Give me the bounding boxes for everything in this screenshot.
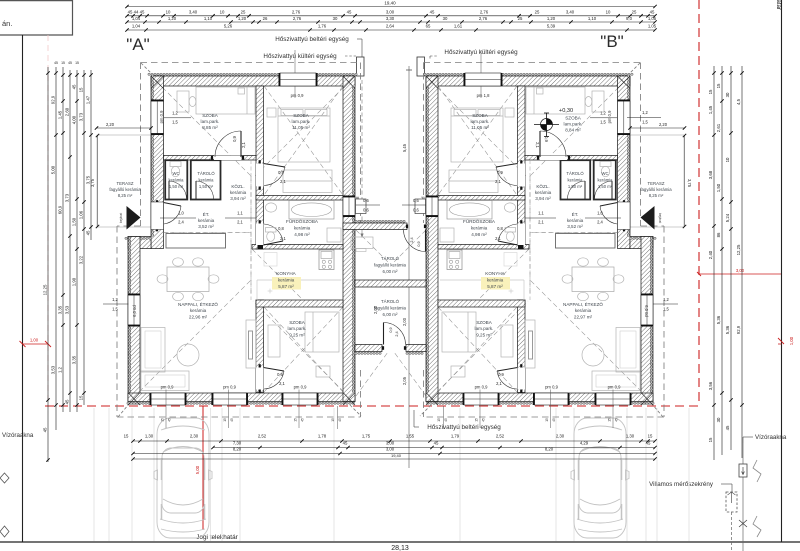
svg-text:lam.park.: lam.park. — [471, 119, 490, 124]
svg-text:2,1: 2,1 — [237, 220, 243, 225]
svg-text:KÖZL.: KÖZL. — [536, 183, 549, 189]
svg-text:65: 65 — [426, 24, 431, 29]
svg-text:fagyálló kerámia: fagyálló kerámia — [374, 263, 407, 268]
svg-text:5,87 m²: 5,87 m² — [487, 284, 503, 289]
svg-text:45: 45 — [615, 418, 619, 422]
svg-text:45: 45 — [168, 418, 172, 422]
svg-text:2,64: 2,64 — [386, 24, 395, 29]
svg-text:2,52: 2,52 — [258, 434, 267, 439]
svg-text:1,50: 1,50 — [716, 183, 721, 192]
svg-text:2,1: 2,1 — [496, 381, 502, 386]
svg-text:92,9: 92,9 — [51, 95, 56, 104]
svg-text:86: 86 — [716, 232, 721, 237]
svg-text:1,78: 1,78 — [318, 434, 327, 439]
svg-text:2,1: 2,1 — [280, 179, 286, 184]
svg-text:2,76: 2,76 — [292, 10, 301, 15]
svg-text:3,35: 3,35 — [72, 355, 77, 364]
svg-text:3,00: 3,00 — [736, 268, 745, 273]
svg-text:15: 15 — [437, 418, 441, 422]
svg-text:45: 45 — [54, 61, 58, 65]
svg-text:1,47: 1,47 — [86, 95, 91, 104]
svg-text:pm 0,9: pm 0,9 — [223, 385, 236, 390]
svg-text:lam.park.: lam.park. — [201, 119, 220, 124]
svg-text:45: 45 — [444, 418, 448, 422]
svg-text:19,40: 19,40 — [391, 453, 402, 458]
svg-text:kerámia: kerámia — [471, 226, 488, 231]
svg-text:kerámia: kerámia — [198, 218, 215, 223]
svg-text:pm 0,9: pm 0,9 — [608, 385, 621, 390]
svg-text:ÉT.: ÉT. — [203, 211, 210, 217]
svg-text:0,6: 0,6 — [413, 198, 419, 203]
svg-text:45: 45 — [65, 399, 70, 404]
svg-text:0,6: 0,6 — [363, 208, 369, 213]
svg-text:pm 0,9: pm 0,9 — [545, 385, 558, 390]
svg-text:1,2: 1,2 — [663, 297, 669, 302]
svg-text:0,8: 0,8 — [278, 226, 284, 231]
svg-text:6,00 m²: 6,00 m² — [383, 312, 398, 317]
svg-text:1,61: 1,61 — [454, 24, 463, 29]
svg-text:45: 45 — [230, 418, 234, 422]
svg-text:8,84 m²: 8,84 m² — [565, 128, 581, 133]
svg-text:1,5: 1,5 — [663, 307, 669, 312]
svg-text:2,4: 2,4 — [410, 237, 414, 242]
svg-text:kerámia: kerámia — [278, 278, 295, 283]
svg-text:1,0: 1,0 — [597, 211, 603, 216]
svg-text:30: 30 — [333, 16, 338, 21]
svg-text:5,45: 5,45 — [402, 143, 407, 152]
svg-text:kerámia: kerámia — [598, 178, 614, 183]
svg-text:SZOBA: SZOBA — [565, 116, 582, 121]
svg-text:fagyálló kerámia: fagyálló kerámia — [640, 187, 672, 192]
svg-text:1,20: 1,20 — [547, 16, 556, 21]
svg-text:10: 10 — [606, 10, 611, 15]
svg-text:3,53: 3,53 — [51, 365, 56, 374]
svg-text:TÁROLÓ: TÁROLÓ — [566, 171, 584, 176]
svg-text:fagyálló kerámia: fagyálló kerámia — [374, 306, 407, 311]
svg-text:kerámia: kerámia — [487, 278, 504, 283]
svg-text:2,52: 2,52 — [496, 434, 505, 439]
svg-text:1,06: 1,06 — [79, 210, 84, 219]
svg-text:3,30: 3,30 — [386, 16, 395, 21]
svg-text:kerámia: kerámia — [230, 190, 247, 195]
svg-text:9,0: 9,0 — [626, 16, 633, 21]
svg-text:pm 0,9: pm 0,9 — [294, 385, 307, 390]
svg-text:3,73: 3,73 — [79, 112, 84, 121]
svg-text:2,1: 2,1 — [280, 236, 286, 241]
svg-text:25: 25 — [535, 10, 540, 15]
svg-text:5,26: 5,26 — [224, 24, 233, 29]
svg-text:19,40: 19,40 — [384, 1, 396, 6]
svg-text:án.: án. — [2, 19, 12, 28]
svg-text:5,87 m²: 5,87 m² — [278, 284, 294, 289]
svg-text:45: 45 — [347, 10, 352, 15]
svg-text:kerámia: kerámia — [190, 308, 207, 313]
svg-text:25: 25 — [241, 10, 246, 15]
svg-text:Vízóraakna: Vízóraakna — [2, 432, 34, 439]
svg-text:0,9: 0,9 — [278, 170, 284, 175]
svg-text:1,05: 1,05 — [648, 16, 657, 21]
svg-text:3,73: 3,73 — [65, 193, 70, 202]
svg-text:28,13: 28,13 — [391, 545, 409, 551]
svg-text:KÖZL.: KÖZL. — [231, 183, 244, 189]
svg-text:bejárat: bejárat — [658, 213, 662, 223]
svg-text:kerámia: kerámia — [169, 178, 185, 183]
svg-text:Jogi telekhatár: Jogi telekhatár — [196, 534, 238, 541]
svg-text:1,5: 1,5 — [600, 120, 606, 125]
svg-text:1,2: 1,2 — [600, 111, 606, 116]
svg-text:1,1: 1,1 — [237, 211, 243, 216]
svg-text:"B": "B" — [600, 32, 623, 51]
svg-text:1,79: 1,79 — [451, 434, 460, 439]
svg-text:1,5: 1,5 — [172, 120, 178, 125]
svg-text:92,9: 92,9 — [736, 325, 741, 334]
svg-text:2,4: 2,4 — [395, 331, 399, 336]
svg-text:1,45: 1,45 — [708, 105, 713, 114]
svg-text:6,00 m²: 6,00 m² — [383, 269, 398, 274]
svg-text:30: 30 — [443, 16, 448, 21]
svg-text:3,94 m²: 3,94 m² — [535, 196, 551, 201]
svg-text:0,6: 0,6 — [363, 198, 369, 203]
svg-text:22,96 m²: 22,96 m² — [189, 315, 208, 320]
svg-text:NAPPALI, ÉTKEZÕ: NAPPALI, ÉTKEZÕ — [178, 301, 218, 307]
svg-text:45: 45 — [552, 418, 556, 422]
svg-text:lam.park.: lam.park. — [564, 122, 583, 127]
svg-text:WC: WC — [602, 171, 609, 176]
svg-text:1,00: 1,00 — [789, 336, 794, 345]
svg-text:45: 45 — [86, 230, 91, 235]
svg-text:lam.park.: lam.park. — [288, 326, 307, 331]
svg-text:kerámia: kerámia — [575, 308, 592, 313]
svg-text:pm 1,8: pm 1,8 — [477, 93, 490, 98]
svg-text:25: 25 — [632, 10, 637, 15]
svg-text:2,00: 2,00 — [402, 317, 407, 326]
svg-text:1,76: 1,76 — [318, 24, 327, 29]
svg-text:FÜRDÕSZOBA: FÜRDÕSZOBA — [463, 218, 496, 224]
svg-text:1,50 m²: 1,50 m² — [568, 184, 583, 189]
svg-text:TÁROLÓ: TÁROLÓ — [381, 256, 400, 261]
svg-text:3,22: 3,22 — [79, 255, 84, 264]
svg-text:0,9: 0,9 — [417, 241, 421, 246]
svg-text:kerámia: kerámia — [567, 218, 584, 223]
svg-text:15: 15 — [475, 418, 479, 422]
svg-text:bejárat: bejárat — [119, 213, 123, 223]
svg-text:11,05 m²: 11,05 m² — [292, 125, 310, 130]
svg-text:0,9: 0,9 — [277, 372, 283, 377]
svg-text:15: 15 — [331, 418, 335, 422]
svg-text:kerámia: kerámia — [535, 190, 552, 195]
svg-text:3,40: 3,40 — [566, 10, 575, 15]
svg-text:8,20: 8,20 — [545, 447, 554, 452]
svg-text:22,97 m²: 22,97 m² — [574, 315, 593, 320]
svg-text:8,25 m²: 8,25 m² — [649, 193, 664, 198]
svg-text:2,05: 2,05 — [402, 376, 407, 385]
svg-text:WC: WC — [173, 171, 180, 176]
svg-text:15: 15 — [124, 434, 129, 439]
svg-text:45: 45 — [343, 441, 348, 446]
svg-text:15: 15 — [708, 89, 713, 94]
svg-text:7,30: 7,30 — [233, 441, 242, 446]
svg-text:2,1: 2,1 — [495, 236, 501, 241]
svg-text:NAPPALI, ÉTKEZÕ: NAPPALI, ÉTKEZÕ — [563, 301, 603, 307]
svg-text:"A": "A" — [126, 35, 149, 54]
svg-text:8,20: 8,20 — [233, 447, 242, 452]
svg-text:1,00: 1,00 — [30, 338, 39, 343]
svg-text:pm 0,9: pm 0,9 — [291, 93, 304, 98]
svg-text:Hőszivattyú beltéri egység: Hőszivattyú beltéri egység — [427, 424, 501, 431]
svg-text:5,24: 5,24 — [725, 213, 730, 222]
svg-text:1,0: 1,0 — [178, 211, 184, 216]
svg-text:0,9: 0,9 — [497, 170, 503, 175]
svg-text:SZOBA: SZOBA — [202, 113, 219, 118]
svg-text:11,05 m²: 11,05 m² — [471, 125, 489, 130]
svg-text:1,10: 1,10 — [204, 16, 213, 21]
svg-text:lam.park.: lam.park. — [475, 326, 494, 331]
svg-text:45: 45 — [68, 61, 72, 65]
svg-text:1,04: 1,04 — [132, 16, 141, 21]
svg-text:1,50 m²: 1,50 m² — [598, 184, 613, 189]
svg-text:15: 15 — [716, 83, 721, 88]
svg-text:pm 0,9: pm 0,9 — [475, 385, 488, 390]
svg-text:SZOBA: SZOBA — [476, 320, 493, 325]
svg-text:45: 45 — [434, 441, 439, 446]
svg-text:TÁROLÓ: TÁROLÓ — [197, 171, 215, 176]
svg-text:26: 26 — [263, 16, 268, 21]
svg-text:45: 45 — [301, 418, 305, 422]
svg-text:pm 0,9: pm 0,9 — [161, 385, 174, 390]
svg-text:45: 45 — [338, 418, 342, 422]
svg-text:SZOBA: SZOBA — [293, 113, 310, 118]
svg-text:5,36: 5,36 — [716, 315, 721, 324]
svg-text:45: 45 — [72, 84, 77, 89]
svg-text:15: 15 — [294, 418, 298, 422]
svg-text:2,1: 2,1 — [538, 220, 544, 225]
svg-text:15: 15 — [79, 395, 84, 400]
svg-text:2,20: 2,20 — [659, 122, 668, 127]
svg-text:1,30: 1,30 — [145, 434, 154, 439]
svg-text:1,50: 1,50 — [72, 217, 77, 226]
svg-text:2,1: 2,1 — [535, 142, 540, 148]
svg-text:2,1: 2,1 — [241, 141, 246, 147]
svg-text:1,2: 1,2 — [642, 110, 648, 115]
svg-text:Vízóraakna: Vízóraakna — [755, 434, 787, 441]
svg-text:1,5: 1,5 — [642, 120, 648, 125]
svg-text:8,25 m²: 8,25 m² — [118, 193, 133, 198]
svg-text:2,30: 2,30 — [556, 434, 565, 439]
svg-text:Villamos mérőszekrény: Villamos mérőszekrény — [649, 481, 714, 488]
svg-text:2,76: 2,76 — [293, 16, 302, 21]
svg-text:3,56: 3,56 — [708, 381, 713, 390]
svg-text:1,04: 1,04 — [132, 24, 141, 29]
svg-text:45: 45 — [725, 425, 730, 430]
svg-text:2,20: 2,20 — [106, 122, 115, 127]
svg-text:5,00: 5,00 — [195, 465, 200, 474]
svg-text:1,50 m²: 1,50 m² — [169, 184, 184, 189]
svg-text:ÉT.: ÉT. — [572, 211, 579, 217]
svg-text:1,30: 1,30 — [626, 434, 635, 439]
svg-text:25: 25 — [518, 16, 523, 21]
svg-text:2,4: 2,4 — [178, 220, 184, 225]
svg-text:3,94 m²: 3,94 m² — [230, 196, 246, 201]
svg-text:2,76: 2,76 — [480, 10, 489, 15]
svg-text:15: 15 — [545, 418, 549, 422]
svg-text:10: 10 — [220, 10, 225, 15]
svg-text:3,52 m²: 3,52 m² — [567, 224, 583, 229]
svg-text:SZOBA: SZOBA — [472, 113, 489, 118]
svg-text:3,00: 3,00 — [386, 10, 395, 15]
svg-text:1,20: 1,20 — [238, 16, 247, 21]
svg-text:4,98 m²: 4,98 m² — [294, 232, 310, 237]
svg-text:1,2: 1,2 — [172, 111, 178, 116]
svg-text:kerámia: kerámia — [294, 226, 311, 231]
svg-text:kerámia: kerámia — [568, 178, 584, 183]
svg-text:SZOBA: SZOBA — [289, 320, 306, 325]
svg-text:3,52 m²: 3,52 m² — [198, 224, 214, 229]
svg-text:fagyálló kerámia: fagyálló kerámia — [109, 187, 141, 192]
svg-text:4,00: 4,00 — [72, 115, 77, 124]
svg-text:0,9: 0,9 — [498, 372, 504, 377]
svg-text:4,5: 4,5 — [736, 98, 741, 105]
svg-text:3,53: 3,53 — [65, 305, 70, 314]
svg-text:15: 15 — [75, 61, 79, 65]
svg-text:2,40: 2,40 — [708, 250, 713, 259]
svg-text:2,61: 2,61 — [716, 123, 721, 132]
svg-text:1,20: 1,20 — [168, 16, 177, 21]
svg-text:5,39: 5,39 — [547, 24, 556, 29]
svg-text:FÜRDÕSZOBA: FÜRDÕSZOBA — [286, 218, 319, 224]
svg-text:0,9: 0,9 — [389, 327, 393, 332]
svg-text:3,68: 3,68 — [708, 170, 713, 179]
svg-text:1,10: 1,10 — [588, 16, 597, 21]
svg-text:3,75: 3,75 — [687, 179, 692, 188]
svg-text:5,36: 5,36 — [725, 325, 730, 334]
svg-text:KONYHA: KONYHA — [276, 271, 296, 276]
svg-text:0,9: 0,9 — [232, 135, 237, 141]
svg-text:5,00: 5,00 — [51, 165, 56, 174]
svg-text:3,35: 3,35 — [58, 305, 63, 314]
svg-text:45: 45 — [650, 10, 655, 15]
svg-text:1,55: 1,55 — [406, 434, 415, 439]
svg-text:10: 10 — [166, 10, 171, 15]
svg-text:Jogi telekhatár: Jogi telekhatár — [775, 0, 782, 10]
svg-text:60,9: 60,9 — [58, 205, 63, 214]
svg-text:pm 0,9: pm 0,9 — [159, 110, 164, 123]
svg-text:TERASZ: TERASZ — [648, 181, 665, 186]
svg-text:TERASZ: TERASZ — [117, 181, 134, 186]
svg-text:1,75: 1,75 — [362, 434, 371, 439]
svg-text:4,98 m²: 4,98 m² — [471, 232, 487, 237]
svg-text:4,29: 4,29 — [580, 441, 589, 446]
svg-text:0,6: 0,6 — [413, 208, 419, 213]
svg-text:2,1: 2,1 — [495, 179, 501, 184]
svg-text:45: 45 — [43, 427, 48, 432]
svg-text:15: 15 — [648, 434, 653, 439]
svg-text:+0,30: +0,30 — [559, 108, 573, 114]
svg-text:Hőszivattyú kültéri egység: Hőszivattyú kültéri egység — [263, 53, 337, 60]
svg-text:45: 45 — [482, 418, 486, 422]
svg-text:1,2: 1,2 — [112, 297, 118, 302]
svg-text:1,1: 1,1 — [538, 211, 544, 216]
svg-text:1,90: 1,90 — [72, 277, 77, 286]
svg-text:0,8: 0,8 — [497, 226, 503, 231]
svg-text:10: 10 — [725, 157, 730, 162]
svg-text:1,05: 1,05 — [648, 24, 657, 29]
svg-text:2,30: 2,30 — [190, 434, 199, 439]
svg-text:2,1: 2,1 — [279, 381, 285, 386]
svg-text:30: 30 — [716, 417, 721, 422]
svg-text:15: 15 — [708, 437, 713, 442]
svg-text:30: 30 — [725, 92, 730, 97]
svg-text:15: 15 — [161, 418, 165, 422]
svg-text:9,25 m²: 9,25 m² — [289, 333, 305, 338]
svg-text:1,45: 1,45 — [58, 110, 63, 119]
svg-text:1,5: 1,5 — [112, 307, 118, 312]
svg-text:1,50 m²: 1,50 m² — [199, 184, 214, 189]
svg-text:12,25: 12,25 — [736, 244, 741, 255]
svg-text:3,00: 3,00 — [386, 441, 395, 446]
svg-text:45: 45 — [646, 441, 651, 446]
svg-text:2,00: 2,00 — [373, 305, 378, 314]
svg-text:pm 0,9: pm 0,9 — [607, 110, 612, 123]
svg-text:3,00: 3,00 — [386, 447, 395, 452]
svg-text:0,9: 0,9 — [544, 136, 549, 142]
svg-text:6,0 üd: 6,0 üd — [644, 305, 649, 317]
svg-text:TÁROLÓ: TÁROLÓ — [381, 299, 400, 304]
svg-text:12,25: 12,25 — [43, 284, 48, 295]
svg-text:1,2: 1,2 — [58, 366, 63, 373]
svg-text:15: 15 — [608, 418, 612, 422]
svg-text:KONYHA: KONYHA — [485, 271, 505, 276]
svg-text:9,25 m²: 9,25 m² — [476, 333, 492, 338]
svg-text:2,76: 2,76 — [479, 16, 488, 21]
svg-text:3,75: 3,75 — [86, 175, 91, 184]
svg-text:lam.park.: lam.park. — [292, 119, 311, 124]
svg-text:2,60: 2,60 — [65, 107, 70, 116]
svg-text:8,85 m²: 8,85 m² — [202, 125, 218, 130]
svg-text:kerámia: kerámia — [199, 178, 215, 183]
svg-text:15: 15 — [79, 87, 84, 92]
svg-text:Hőszivattyú beltéri egység: Hőszivattyú beltéri egység — [275, 36, 349, 43]
svg-text:3,40: 3,40 — [189, 10, 198, 15]
svg-text:2,4: 2,4 — [597, 220, 603, 225]
svg-text:15: 15 — [223, 418, 227, 422]
svg-text:45 44 45: 45 44 45 — [128, 10, 145, 15]
svg-text:15: 15 — [61, 61, 65, 65]
svg-text:6,0 üd: 6,0 üd — [132, 305, 137, 317]
svg-text:45: 45 — [430, 10, 435, 15]
